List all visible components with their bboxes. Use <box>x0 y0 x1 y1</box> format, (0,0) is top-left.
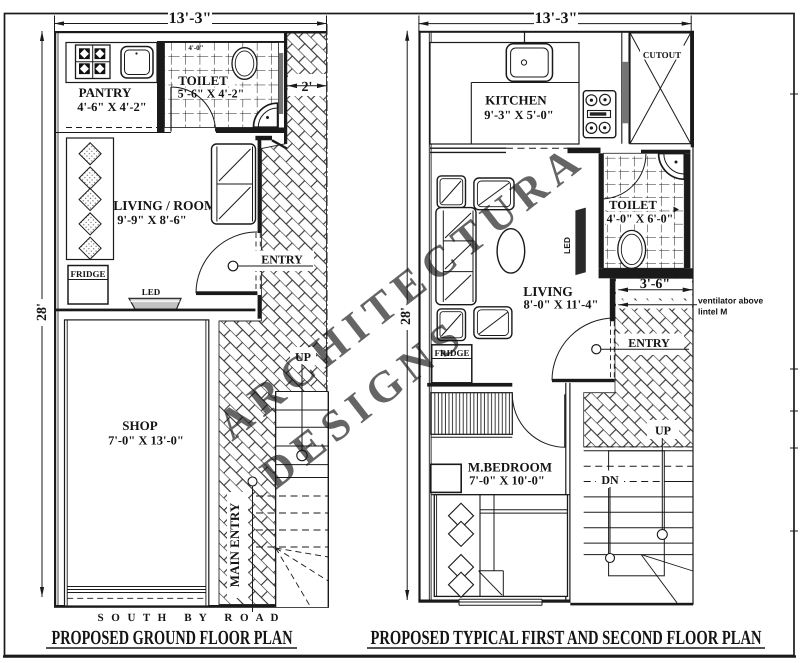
svg-text:lintel M: lintel M <box>698 307 727 317</box>
svg-text:FRIDGE: FRIDGE <box>70 269 105 279</box>
svg-text:5'-6" X 4'-2": 5'-6" X 4'-2" <box>178 87 245 101</box>
svg-text:ENTRY: ENTRY <box>261 253 303 267</box>
svg-text:ventilator above: ventilator above <box>698 296 763 306</box>
svg-text:7'-0" X 10'-0": 7'-0" X 10'-0" <box>469 474 545 488</box>
svg-text:LED: LED <box>142 287 161 297</box>
svg-text:9'-3" X 5'-0": 9'-3" X 5'-0" <box>484 108 553 122</box>
svg-text:S O U T H B Y R O A D: S O U T H B Y R O A D <box>98 612 279 624</box>
svg-text:28': 28' <box>35 303 50 321</box>
svg-text:MAIN ENTRY: MAIN ENTRY <box>227 502 242 587</box>
svg-text:4'-6" X 4'-2": 4'-6" X 4'-2" <box>77 100 146 114</box>
svg-text:CUTOUT: CUTOUT <box>643 50 681 60</box>
svg-text:3'-6": 3'-6" <box>640 277 670 292</box>
svg-text:UP: UP <box>655 424 671 438</box>
svg-text:DN: DN <box>601 473 619 487</box>
svg-text:LIVING / ROOM: LIVING / ROOM <box>113 198 217 213</box>
svg-text:KITCHEN: KITCHEN <box>485 93 547 108</box>
svg-text:4'-0": 4'-0" <box>188 44 203 52</box>
svg-text:4'-0" X 6'-0": 4'-0" X 6'-0" <box>607 212 674 226</box>
svg-text:7'-0" X 13'-0": 7'-0" X 13'-0" <box>108 434 184 448</box>
svg-text:PROPOSED TYPICAL FIRST AND SEC: PROPOSED TYPICAL FIRST AND SECOND FLOOR … <box>371 627 762 649</box>
svg-text:M.BEDROOM: M.BEDROOM <box>468 460 552 475</box>
svg-text:8'-0" X 11'-4": 8'-0" X 11'-4" <box>524 298 599 312</box>
svg-text:13'-3": 13'-3" <box>535 10 578 27</box>
svg-text:13'-3": 13'-3" <box>169 10 212 27</box>
svg-text:9'-9" X 8'-6": 9'-9" X 8'-6" <box>117 213 186 227</box>
svg-text:TOILET: TOILET <box>609 198 657 212</box>
svg-text:PROPOSED GROUND FLOOR PLAN: PROPOSED GROUND FLOOR PLAN <box>52 627 293 649</box>
svg-text:2': 2' <box>302 80 313 95</box>
svg-text:ENTRY: ENTRY <box>628 336 670 350</box>
svg-text:SHOP: SHOP <box>122 418 157 433</box>
svg-text:LED: LED <box>562 237 572 254</box>
svg-text:PANTRY: PANTRY <box>79 85 132 100</box>
